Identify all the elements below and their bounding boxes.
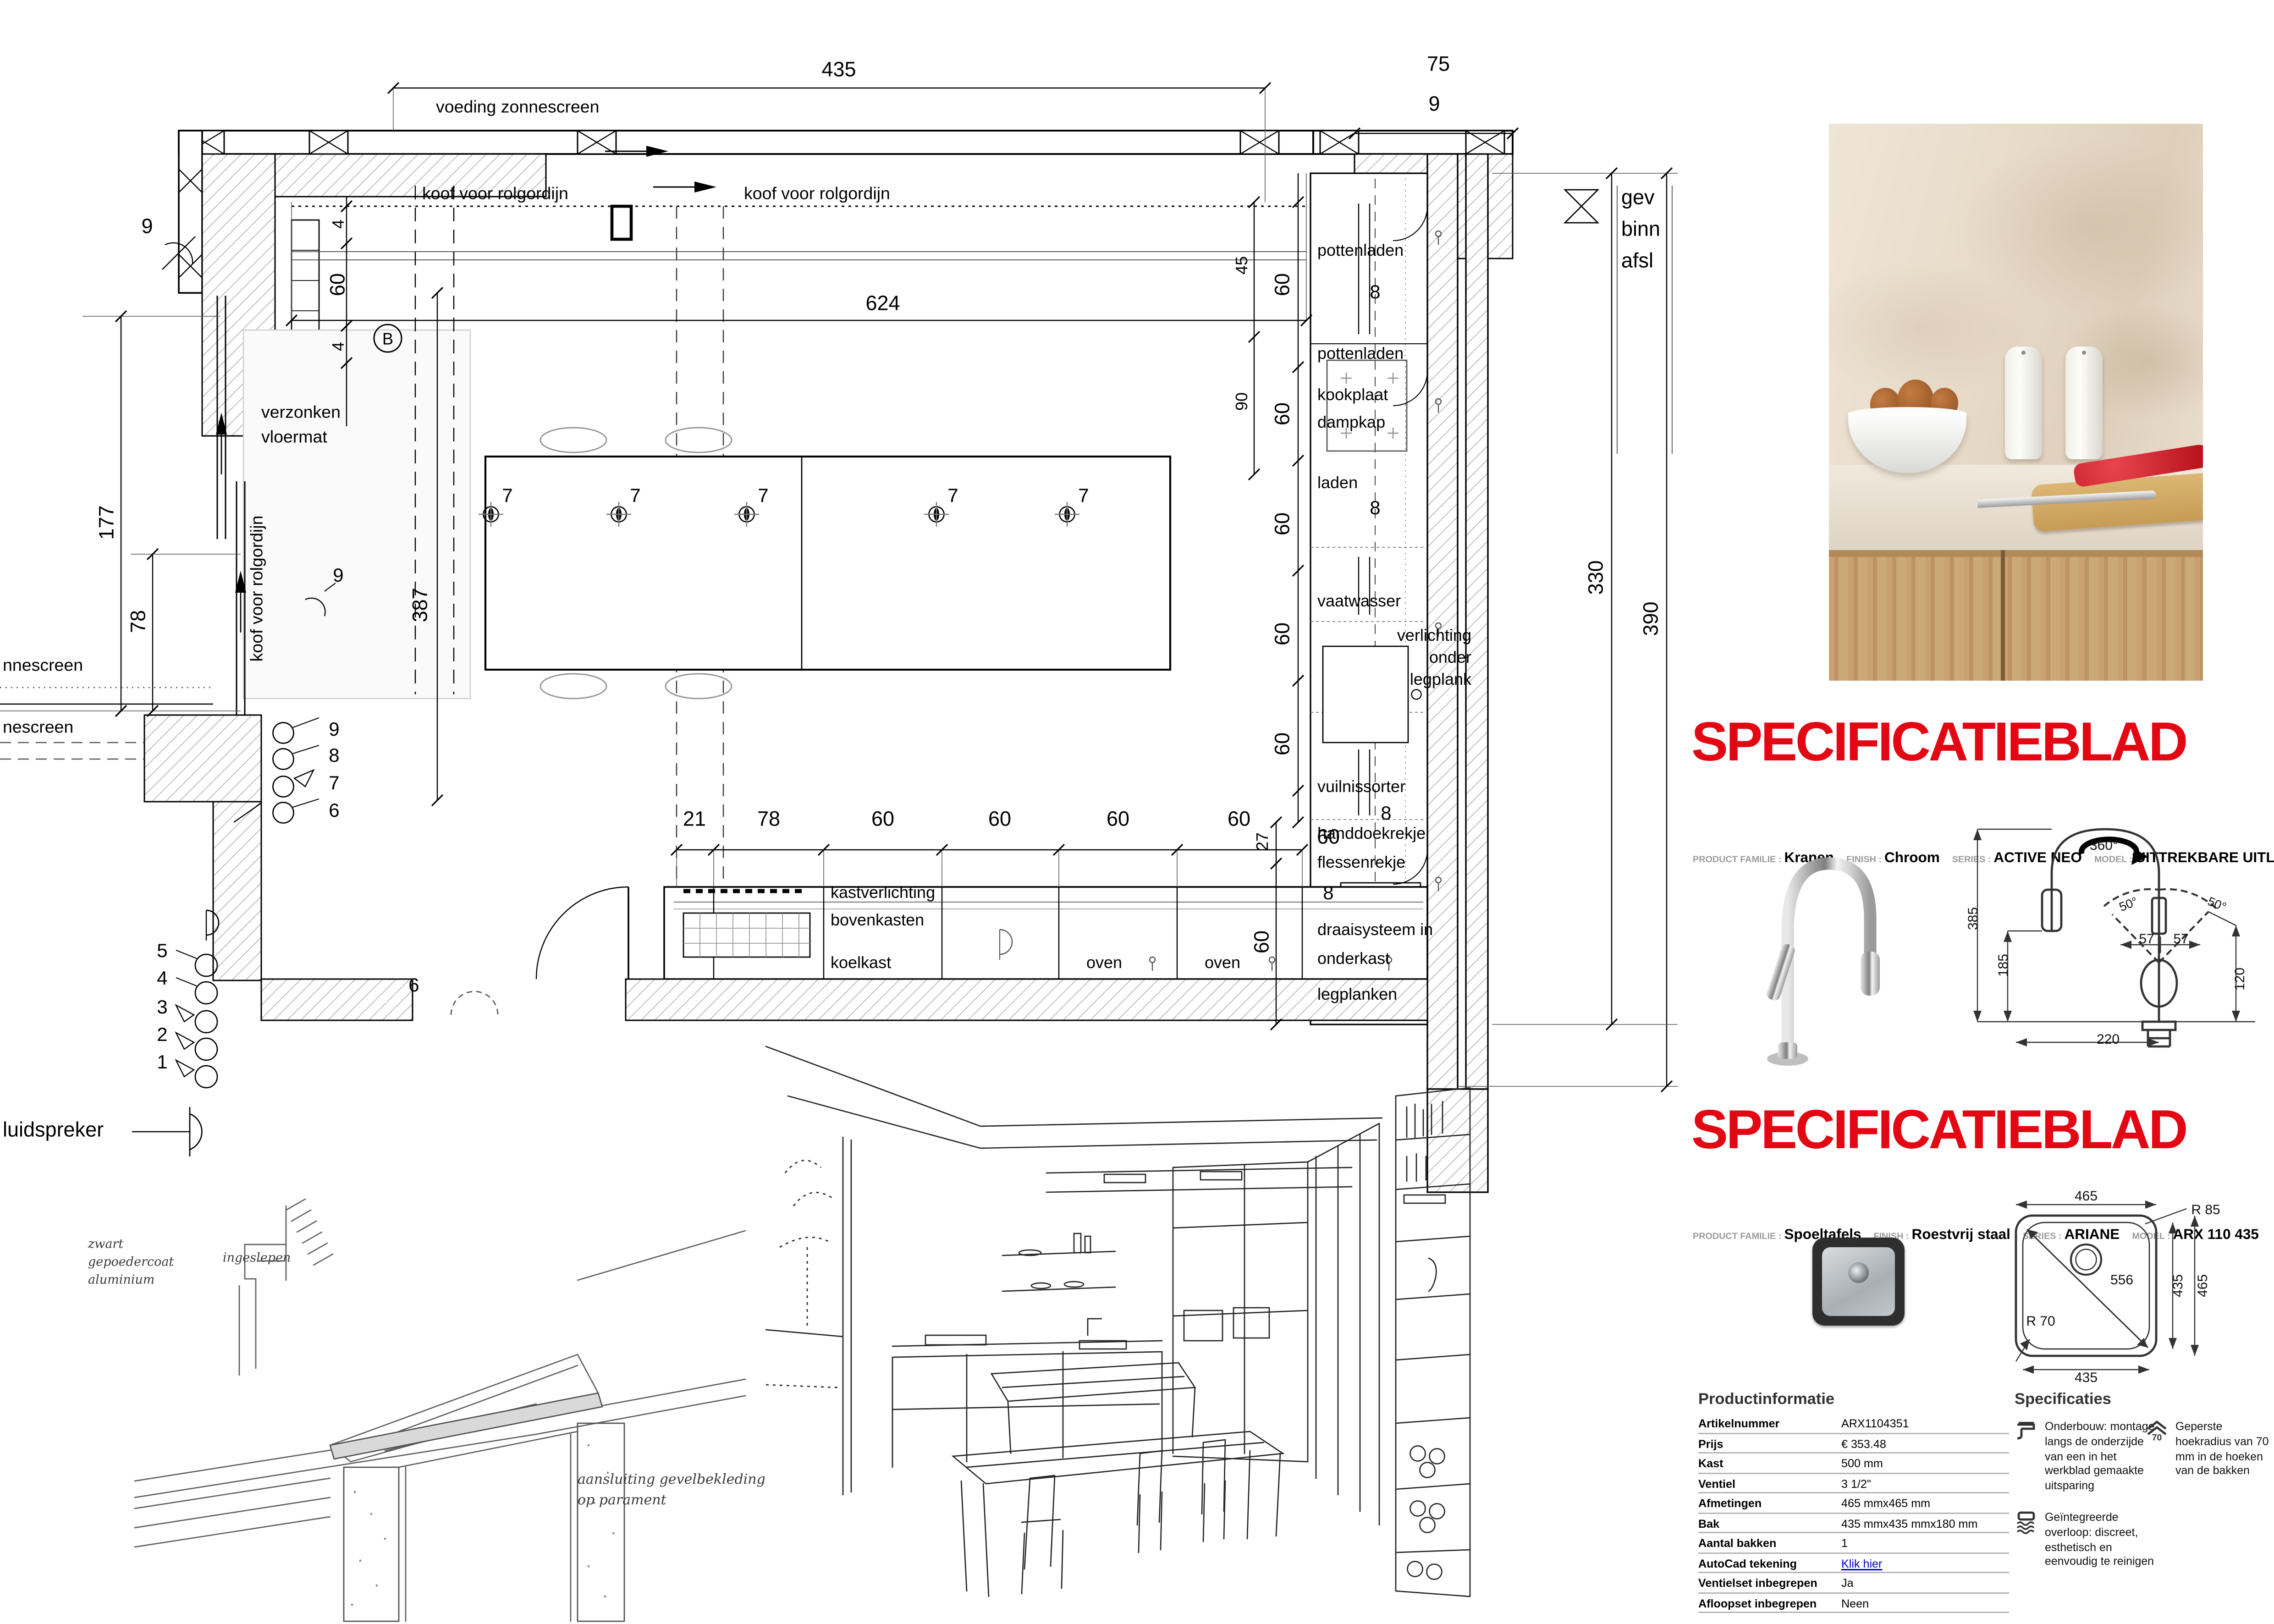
dimension-label: 4 <box>330 220 347 229</box>
dimension-label: 60 <box>1252 930 1273 953</box>
plan-label: voeding zonnescreen <box>436 99 600 116</box>
dimension-label: 360° <box>2090 840 2118 854</box>
plan-label: kastverlichting <box>831 884 935 901</box>
plan-label: legplank <box>1410 671 1471 688</box>
plan-label: kookplaat <box>1317 386 1388 403</box>
plan-label: koelkast <box>831 954 891 971</box>
plan-label: luidspreker <box>3 1120 104 1141</box>
dimension-label: 7 <box>758 485 768 505</box>
handwritten-note: gepoedercoat <box>88 1258 174 1270</box>
plan-label: oven <box>1205 954 1240 971</box>
dimension-label: 435 <box>821 60 856 81</box>
plan-label: oven <box>1086 954 1122 971</box>
dimension-label: 4 <box>157 968 167 987</box>
dimension-label: 60 <box>1107 809 1129 830</box>
dimension-label: 4 <box>330 342 347 351</box>
dimension-label: 185 <box>1998 954 2012 977</box>
dimension-label: 9 <box>329 719 339 738</box>
dimension-label: 435 <box>2173 1274 2186 1297</box>
dimension-label: 60 <box>1273 622 1294 645</box>
plan-label: verzonken <box>261 404 341 421</box>
dimension-label: 9 <box>333 565 343 584</box>
plan-label: vuilnissorter <box>1317 778 1405 795</box>
dimension-label: 78 <box>129 610 149 633</box>
dimension-label: 7 <box>502 485 512 505</box>
plan-label: legplanken <box>1317 986 1397 1002</box>
dimension-label: 57 <box>2173 934 2188 947</box>
handwritten-note: zwart <box>88 1240 123 1252</box>
dimension-label: 9 <box>1428 94 1440 115</box>
dimension-label: 60 <box>1228 809 1250 830</box>
label-overlay: 435759voeding zonnescreenkoof voor rolgo… <box>0 0 2274 1624</box>
plan-label: onderkast <box>1317 950 1390 967</box>
dimension-label: 60 <box>1273 273 1294 296</box>
dimension-label: 1 <box>157 1052 167 1071</box>
plan-label: nescreen <box>3 719 73 736</box>
dimension-label: 7 <box>947 485 958 505</box>
dimension-label: 60 <box>988 809 1011 830</box>
plan-label: koof voor rolgordijn <box>744 185 890 203</box>
plan-label: pottenladen <box>1317 345 1404 362</box>
dimension-label: R 85 <box>2191 1205 2220 1218</box>
dimension-label: 3 <box>157 997 167 1016</box>
handwritten-note: ingeslepen <box>223 1254 291 1266</box>
plan-label: koof voor rolgordijn <box>248 516 266 662</box>
dimension-label: 624 <box>865 294 900 314</box>
handwritten-note: op parament <box>578 1495 666 1508</box>
plan-label: vaatwasser <box>1317 593 1401 609</box>
dimension-label: 7 <box>630 485 640 505</box>
dimension-label: 45 <box>1233 256 1250 275</box>
dimension-label: 78 <box>757 809 780 830</box>
dimension-label: 120 <box>2235 968 2248 991</box>
dimension-label: 8 <box>1381 803 1391 822</box>
handwritten-note: aansluiting gevelbekleding <box>578 1474 765 1488</box>
dimension-label: 2 <box>157 1024 167 1044</box>
plan-label: nnescreen <box>3 657 83 674</box>
dimension-label: 220 <box>2097 1034 2120 1048</box>
dimension-label: 465 <box>2197 1274 2211 1297</box>
dimension-label: 8 <box>329 745 339 765</box>
dimension-label: 435 <box>2075 1372 2098 1386</box>
plan-label: draaisysteem in <box>1317 921 1433 938</box>
dimension-label: 7 <box>1078 485 1089 505</box>
dimension-label: R 70 <box>2026 1316 2055 1330</box>
dimension-label: 60 <box>328 273 349 296</box>
plan-label: afsl <box>1621 251 1653 272</box>
dimension-label: 50° <box>2118 896 2140 914</box>
dimension-label: 50° <box>2206 896 2228 914</box>
dimension-label: 75 <box>1427 55 1450 75</box>
plan-label: flessenrekje <box>1317 854 1405 870</box>
plan-label: verlichting <box>1397 627 1471 644</box>
dimension-label: 5 <box>157 941 167 960</box>
dimension-label: 177 <box>97 505 118 539</box>
dimension-label: 90 <box>1233 392 1250 411</box>
plan-label: gev <box>1621 188 1655 209</box>
plan-label: handdoekrekje <box>1317 825 1426 842</box>
handwritten-note: aluminium <box>88 1276 154 1288</box>
plan-label: koof voor rolgordijn <box>422 185 568 203</box>
dimension-label: 387 <box>411 588 431 622</box>
drawing-sheet: SPECIFICATIEBLAD PRODUCT FAMILIE :Kranen… <box>0 0 2274 1624</box>
dimension-label: 27 <box>1254 832 1271 851</box>
plan-label: pottenladen <box>1317 242 1404 259</box>
dimension-label: 385 <box>1968 907 1982 930</box>
dimension-label: 556 <box>2110 1275 2133 1288</box>
dimension-label: 6 <box>329 800 339 820</box>
dimension-label: 8 <box>1370 498 1380 517</box>
plan-label: binn <box>1621 220 1660 240</box>
dimension-label: 9 <box>141 217 153 237</box>
plan-label: B <box>374 324 402 353</box>
dimension-label: 465 <box>2075 1191 2098 1205</box>
dimension-label: 390 <box>1641 601 1662 636</box>
dimension-label: 330 <box>1586 560 1607 595</box>
dimension-label: 60 <box>871 809 894 830</box>
dimension-label: 60 <box>1273 512 1294 535</box>
dimension-label: 21 <box>683 809 706 830</box>
dimension-label: 8 <box>1370 282 1380 301</box>
dimension-label: 60 <box>1273 402 1294 425</box>
dimension-label: 7 <box>329 773 339 792</box>
dimension-label: 6 <box>408 975 419 994</box>
plan-label: vloermat <box>261 429 327 446</box>
plan-label: laden <box>1317 474 1358 491</box>
plan-label: onder <box>1429 649 1471 666</box>
dimension-label: 60 <box>1273 732 1294 755</box>
dimension-label: 8 <box>1323 883 1333 902</box>
plan-label: bovenkasten <box>831 912 924 928</box>
dimension-label: 57 <box>2139 934 2154 947</box>
plan-label: dampkap <box>1317 414 1385 430</box>
